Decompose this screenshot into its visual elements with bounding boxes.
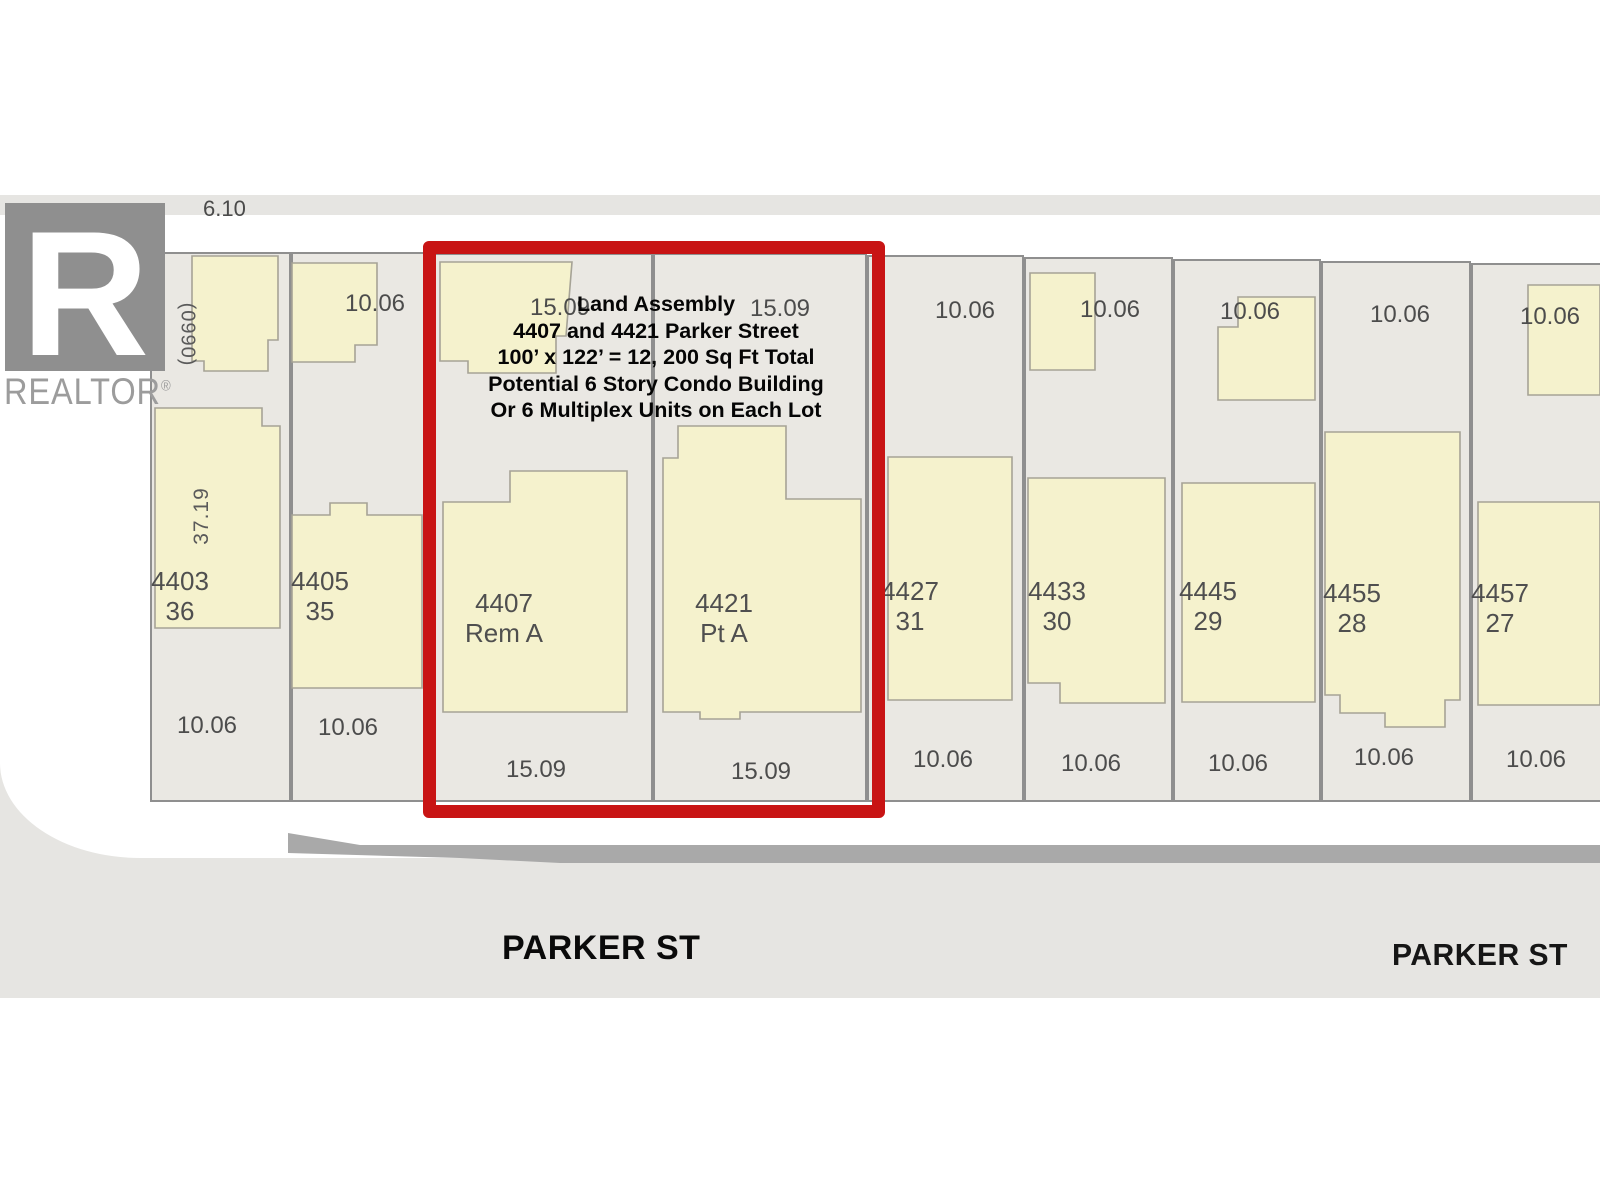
annotation-line-3: 100’ x 122’ = 12, 200 Sq Ft Total (460, 344, 852, 371)
lot-number: 31 (881, 606, 939, 636)
lane-width-label: 6.10 (203, 196, 246, 222)
lot-4457 (1471, 263, 1600, 802)
annotation-line-2: 4407 and 4421 Parker Street (460, 318, 852, 345)
lot-number: 27 (1471, 608, 1529, 638)
lot-4427-frontage-bottom: 10.06 (913, 746, 973, 774)
lot-4457-frontage-bottom: 10.06 (1506, 746, 1566, 774)
lot-4457-address: 445727 (1471, 578, 1529, 638)
realtor-logo: R (5, 203, 165, 371)
house-number: 4405 (291, 566, 349, 596)
lot-4445 (1173, 259, 1321, 802)
lot-4405-frontage-bottom: 10.06 (318, 714, 378, 742)
lot-4427 (867, 255, 1024, 802)
lot-4457-frontage-top: 10.06 (1520, 303, 1580, 331)
house-number: 4457 (1471, 578, 1529, 608)
lot-4433-frontage-top: 10.06 (1080, 296, 1140, 324)
registered-trademark-icon: ® (161, 378, 172, 395)
lot-4403-frontage-bottom: 10.06 (177, 712, 237, 740)
lot-number: 28 (1323, 608, 1381, 638)
lot-depth-label: 37.19 (190, 474, 214, 558)
annotation-line-5: Or 6 Multiplex Units on Each Lot (460, 397, 852, 424)
lot-4427-frontage-top: 10.06 (935, 297, 995, 325)
lot-4433 (1024, 257, 1173, 802)
annotation-line-4: Potential 6 Story Condo Building (460, 371, 852, 398)
house-number: 4445 (1179, 576, 1237, 606)
parcel-map-screenshot: 10.0644033610.0610.0644053515.0915.09440… (0, 0, 1600, 1200)
lot-4445-frontage-top: 10.06 (1220, 298, 1280, 326)
lot-4427-address: 442731 (881, 576, 939, 636)
lot-4455 (1321, 261, 1471, 802)
lot-4433-address: 443330 (1028, 576, 1086, 636)
annotation-line-1: Land Assembly (460, 291, 852, 318)
lot-4405-frontage-top: 10.06 (345, 290, 405, 318)
street-label-parker-st-right: PARKER ST (1392, 937, 1568, 973)
realtor-wordmark-text: REALTOR (4, 371, 161, 412)
house-number: 4427 (881, 576, 939, 606)
lot-4455-frontage-bottom: 10.06 (1354, 744, 1414, 772)
lot-4455-address: 445528 (1323, 578, 1381, 638)
lot-4445-frontage-bottom: 10.06 (1208, 750, 1268, 778)
realtor-wordmark: REALTOR® (4, 371, 172, 413)
lot-4433-frontage-bottom: 10.06 (1061, 750, 1121, 778)
lot-4403-address: 440336 (151, 566, 209, 626)
lot-number: 36 (151, 596, 209, 626)
lot-4455-frontage-top: 10.06 (1370, 301, 1430, 329)
lot-number: 30 (1028, 606, 1086, 636)
house-number: 4403 (151, 566, 209, 596)
street-label-parker-st-left: PARKER ST (502, 929, 700, 968)
plan-number-label: (0990) (176, 295, 199, 375)
lot-number: 29 (1179, 606, 1237, 636)
house-number: 4433 (1028, 576, 1086, 606)
house-number: 4455 (1323, 578, 1381, 608)
land-assembly-annotation: Land Assembly 4407 and 4421 Parker Stree… (460, 291, 852, 424)
realtor-logo-r-icon: R (5, 203, 165, 371)
lot-4445-address: 444529 (1179, 576, 1237, 636)
lot-4405-address: 440535 (291, 566, 349, 626)
lot-number: 35 (291, 596, 349, 626)
